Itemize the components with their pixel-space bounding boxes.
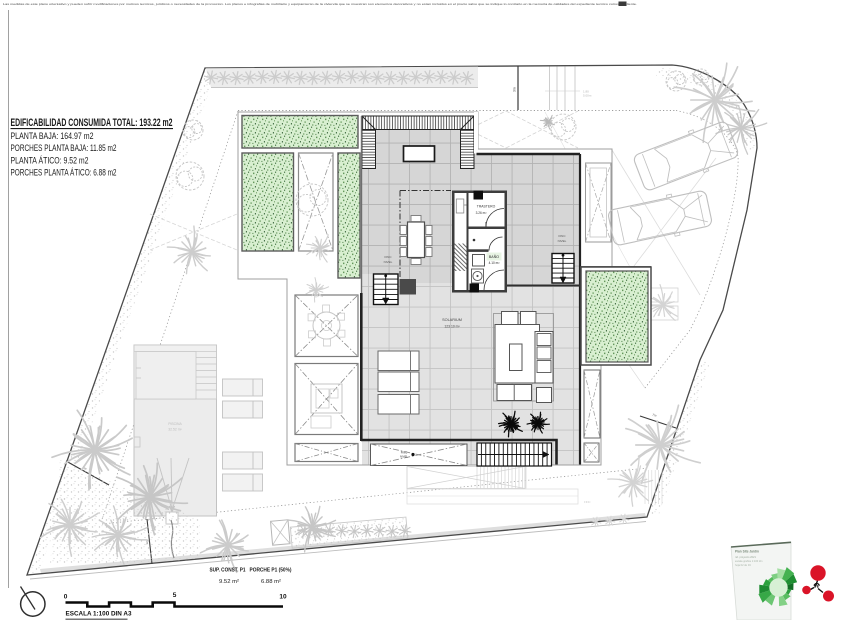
svg-text:6.88 m²: 6.88 m² bbox=[261, 579, 281, 585]
svg-text:PLANTA BAJA: 164.97 m2: PLANTA BAJA: 164.97 m2 bbox=[11, 131, 94, 142]
svg-text:9.52 m²: 9.52 m² bbox=[219, 579, 239, 585]
svg-text:NIVEL: NIVEL bbox=[558, 239, 567, 243]
svg-text:Plan Site Jardín: Plan Site Jardín bbox=[735, 550, 759, 554]
svg-text:PORCHES PLANTA BAJA: 11.85 m2: PORCHES PLANTA BAJA: 11.85 m2 bbox=[11, 143, 117, 154]
svg-text:ref. proyecto 2021: ref. proyecto 2021 bbox=[735, 555, 756, 559]
svg-text:32.52 m²: 32.52 m² bbox=[168, 428, 182, 432]
svg-text:3m: 3m bbox=[513, 87, 517, 92]
svg-text:TRASTERO: TRASTERO bbox=[477, 205, 496, 209]
svg-text:escala grafica 1:100 din: escala grafica 1:100 din bbox=[735, 559, 763, 563]
svg-text:BAÑO: BAÑO bbox=[489, 254, 499, 259]
svg-text:5.00m: 5.00m bbox=[583, 94, 592, 98]
svg-text:PORCHE P1 (50%): PORCHE P1 (50%) bbox=[250, 568, 292, 574]
svg-text:PISCINA: PISCINA bbox=[168, 422, 182, 426]
svg-text:PLANTA ÁTICO: 9.52 m2: PLANTA ÁTICO: 9.52 m2 bbox=[11, 155, 89, 166]
svg-text:NIVEL: NIVEL bbox=[384, 260, 393, 264]
svg-text:0: 0 bbox=[64, 594, 68, 601]
svg-text:PORCHES PLANTA ÁTICO: 6.88 m2: PORCHES PLANTA ÁTICO: 6.88 m2 bbox=[11, 168, 117, 179]
svg-text:5: 5 bbox=[173, 592, 177, 599]
svg-text:SOLARIUM: SOLARIUM bbox=[442, 318, 462, 322]
svg-text:Las medidas de este plano orie: Las medidas de este plano orientativo y … bbox=[3, 2, 637, 6]
svg-text:FINC: FINC bbox=[559, 234, 567, 238]
svg-text:10: 10 bbox=[279, 594, 287, 601]
svg-text:4.10 m²: 4.10 m² bbox=[489, 261, 500, 265]
svg-text:EDIFICABILIDAD CONSUMIDA TOTAL: EDIFICABILIDAD CONSUMIDA TOTAL: 193.22 m… bbox=[11, 117, 173, 129]
svg-text:123.10 m²: 123.10 m² bbox=[444, 325, 460, 329]
svg-text:FINC: FINC bbox=[385, 255, 393, 259]
svg-text:hoja 02 de 04: hoja 02 de 04 bbox=[735, 563, 751, 567]
svg-text:NIVEL: NIVEL bbox=[400, 455, 409, 459]
svg-text:ESCALA 1:100 DIN A3: ESCALA 1:100 DIN A3 bbox=[66, 611, 132, 618]
svg-text:SUP. CONST. P1: SUP. CONST. P1 bbox=[210, 568, 247, 574]
svg-text:FINC: FINC bbox=[584, 500, 591, 504]
svg-text:3.26 m²: 3.26 m² bbox=[476, 211, 487, 215]
